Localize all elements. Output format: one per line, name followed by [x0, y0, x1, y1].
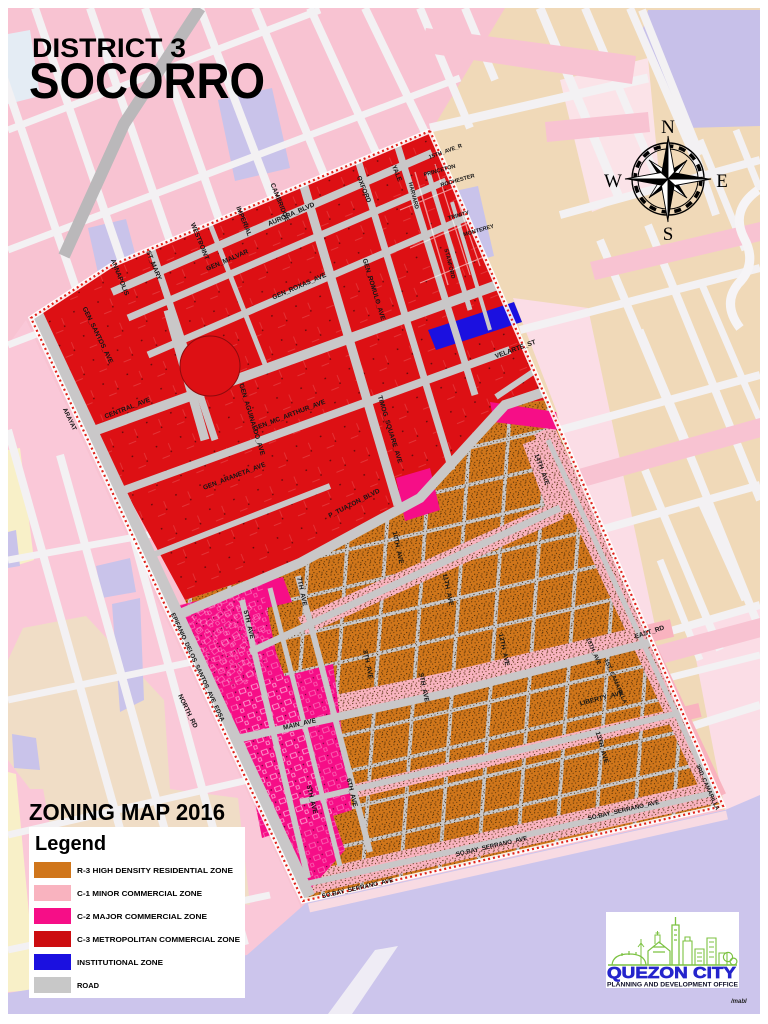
- svg-text:SOCORRO: SOCORRO: [29, 53, 265, 109]
- svg-text:E: E: [716, 171, 728, 192]
- svg-text:ZONING MAP 2016: ZONING MAP 2016: [29, 799, 225, 825]
- svg-text:S: S: [663, 224, 674, 245]
- svg-text:INSTITUTIONAL ZONE: INSTITUTIONAL ZONE: [77, 958, 163, 967]
- svg-text:C-3 METROPOLITAN COMMERCIAL ZO: C-3 METROPOLITAN COMMERCIAL ZONE: [77, 935, 240, 944]
- svg-text:ROAD: ROAD: [77, 981, 100, 990]
- svg-text:QUEZON CITY: QUEZON CITY: [607, 965, 736, 982]
- svg-text:PLANNING AND DEVELOPMENT OFFIC: PLANNING AND DEVELOPMENT OFFICE: [607, 982, 739, 989]
- svg-text:W: W: [604, 171, 622, 192]
- svg-text:R-3 HIGH DENSITY RESIDENTIAL Z: R-3 HIGH DENSITY RESIDENTIAL ZONE: [77, 866, 233, 875]
- svg-text:N: N: [661, 117, 675, 138]
- svg-text:/mabl: /mabl: [730, 999, 747, 1005]
- svg-text:C-1 MINOR COMMERCIAL ZONE: C-1 MINOR COMMERCIAL ZONE: [77, 889, 202, 898]
- svg-text:Legend: Legend: [35, 833, 106, 855]
- svg-text:C-2 MAJOR COMMERCIAL ZONE: C-2 MAJOR COMMERCIAL ZONE: [77, 912, 207, 921]
